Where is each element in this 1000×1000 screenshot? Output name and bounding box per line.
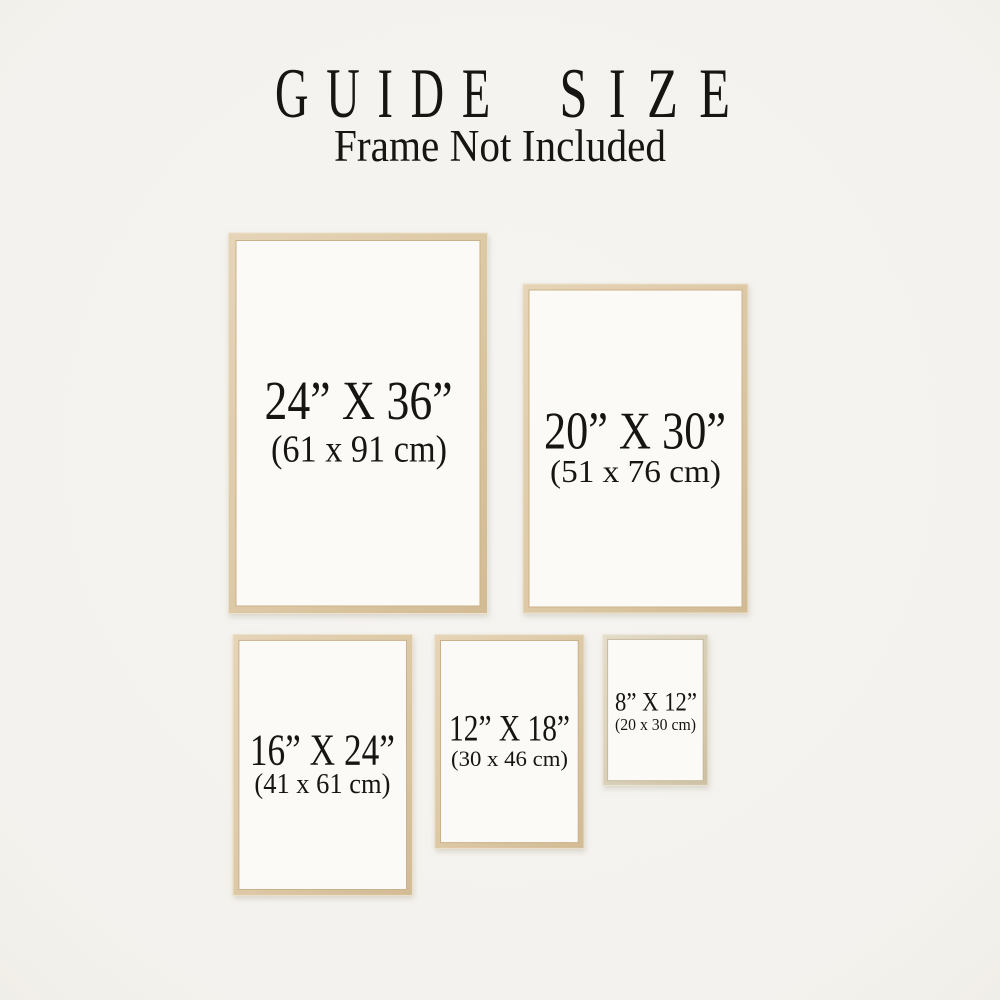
svg-text:Frame Not Included: Frame Not Included [334, 121, 666, 171]
svg-text:8” X 12”: 8” X 12” [615, 687, 697, 717]
svg-text:(41 x 61 cm): (41 x 61 cm) [254, 768, 390, 800]
svg-text:(61 x 91 cm): (61 x 91 cm) [271, 429, 447, 471]
svg-text:(30 x 46 cm): (30 x 46 cm) [451, 746, 568, 771]
svg-text:24” X 36”: 24” X 36” [265, 370, 453, 431]
svg-text:20” X 30”: 20” X 30” [544, 402, 726, 461]
svg-text:(51 x 76 cm): (51 x 76 cm) [550, 454, 721, 489]
svg-text:16” X 24”: 16” X 24” [250, 725, 395, 775]
svg-text:(20 x 30 cm): (20 x 30 cm) [615, 715, 696, 734]
svg-text:12” X 18”: 12” X 18” [449, 709, 570, 750]
